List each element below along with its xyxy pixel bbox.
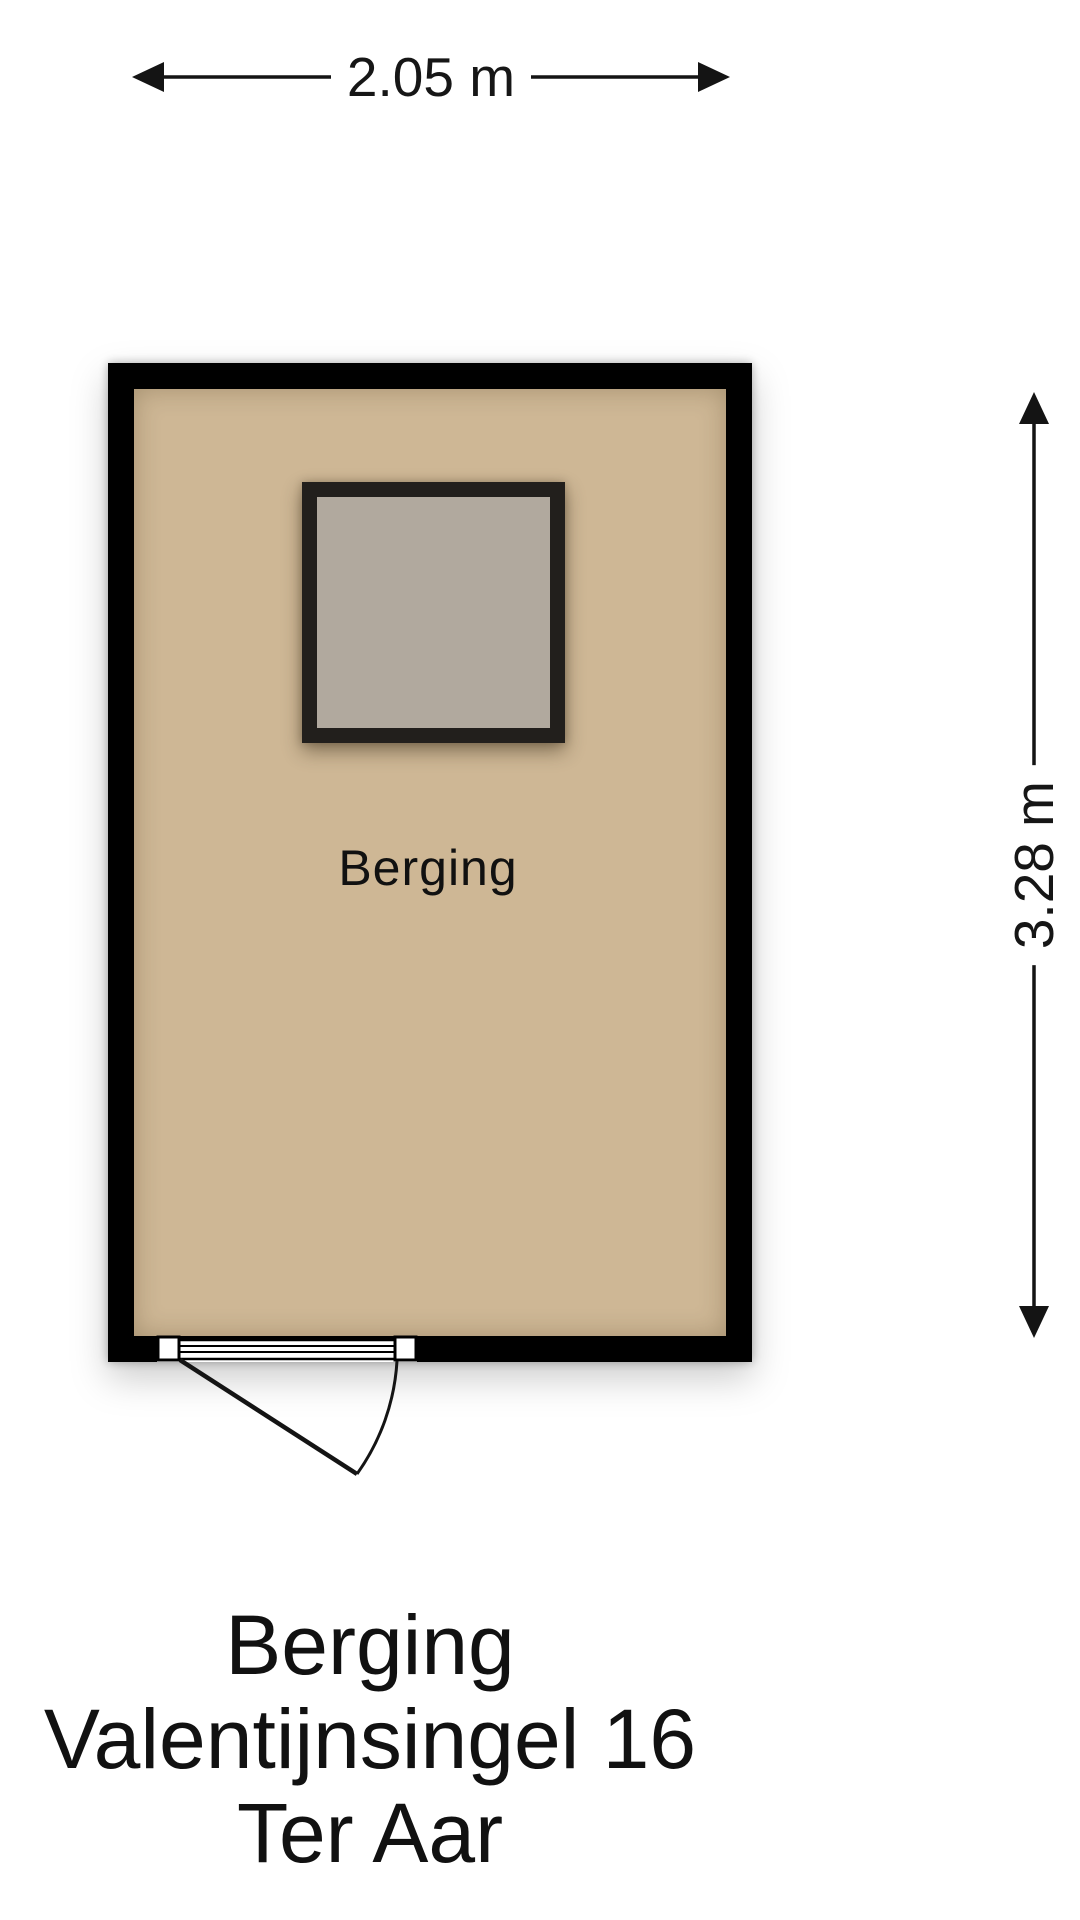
door-post-right: [395, 1337, 416, 1360]
floorplan-canvas: 2.05 m 3.28 m Berging Berging Valentijns…: [0, 0, 1080, 1920]
caption-address: Valentijnsingel 16: [0, 1692, 740, 1786]
arrow-up-icon: [1019, 392, 1049, 424]
arrow-down-icon: [1019, 1306, 1049, 1338]
skylight-square: [302, 482, 565, 743]
door-threshold: [179, 1340, 395, 1359]
width-dimension-arrow: [130, 60, 732, 94]
door-post-left: [158, 1337, 179, 1360]
door-swing-arc: [357, 1361, 397, 1474]
caption-city: Ter Aar: [0, 1786, 740, 1880]
arrow-right-icon: [698, 62, 730, 92]
plan-caption: Berging Valentijnsingel 16 Ter Aar: [0, 1598, 740, 1880]
door-assembly: [130, 1325, 470, 1535]
arrow-left-icon: [132, 62, 164, 92]
door-leaf: [180, 1360, 357, 1474]
caption-room-name: Berging: [0, 1598, 740, 1692]
room-label: Berging: [308, 838, 548, 898]
height-dimension-arrow: [1017, 390, 1051, 1340]
